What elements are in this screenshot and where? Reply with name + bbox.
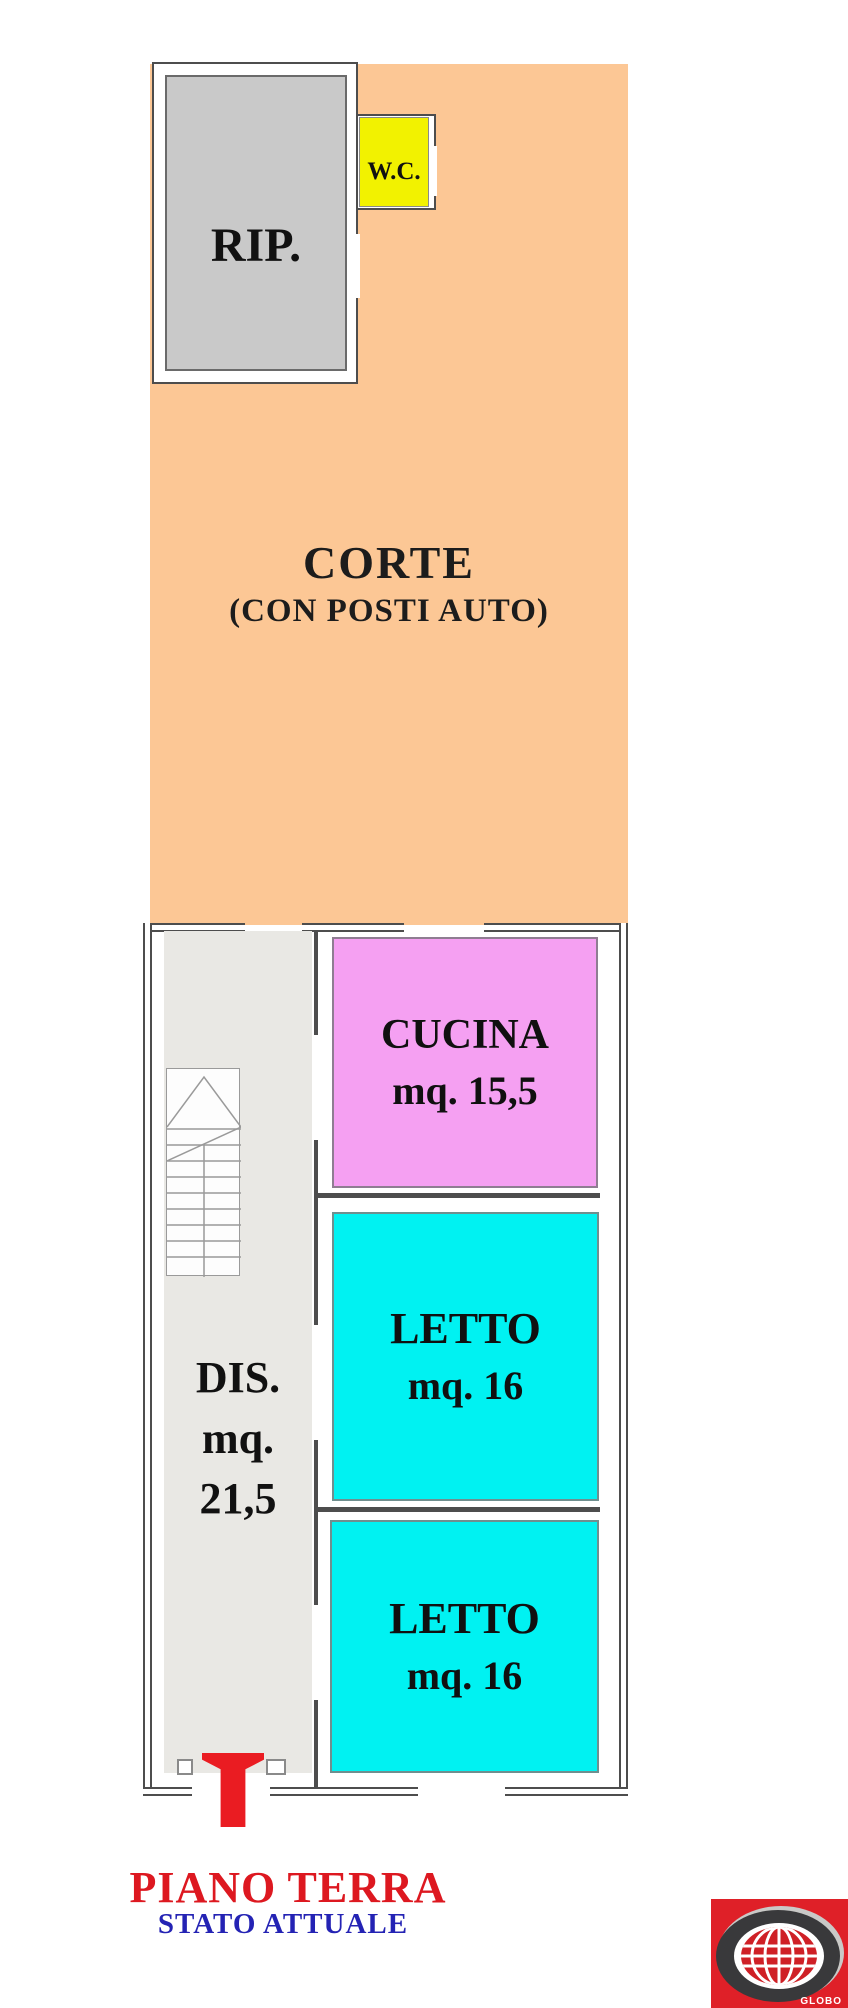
- globe-icon: GLOBO: [711, 1899, 848, 2008]
- floor-plan-canvas: CORTE (CON POSTI AUTO) RIP. W.C. DIS. mq…: [0, 0, 848, 2008]
- logo-text: GLOBO: [800, 1996, 842, 2007]
- bottom-wall-segment-2: [270, 1787, 418, 1796]
- plan-title: PIANO TERRA: [88, 1862, 488, 1913]
- dis-area-unit: mq.: [158, 1409, 318, 1470]
- entrance-jamb-left: [177, 1759, 193, 1775]
- wc-door-opening: [429, 146, 437, 196]
- staircase-drawing: [167, 1069, 241, 1277]
- rip-door-opening: [352, 234, 360, 298]
- letto2-label: LETTO: [389, 1595, 540, 1643]
- dis-label: DIS. mq. 21,5: [158, 1348, 318, 1530]
- partition-wall-segment-1: [314, 931, 318, 1035]
- dis-room-name: DIS.: [158, 1348, 318, 1409]
- letto1-label: LETTO: [390, 1305, 541, 1353]
- left-outer-wall: [143, 923, 152, 1795]
- letto2-area: mq. 16: [407, 1654, 523, 1698]
- corte-subtitle: (CON POSTI AUTO): [150, 595, 628, 628]
- cucina-label: CUCINA: [381, 1012, 549, 1058]
- wall-under-cucina: [318, 1193, 600, 1198]
- bottom-wall-segment-3: [505, 1787, 628, 1796]
- top-wall-segment-3: [484, 923, 628, 932]
- entrance-jamb-right: [266, 1759, 286, 1775]
- letto1-room: LETTO mq. 16: [332, 1212, 599, 1501]
- wc-label: W.C.: [359, 158, 429, 186]
- bottom-wall-segment-1: [143, 1787, 192, 1796]
- staircase: [166, 1068, 240, 1276]
- corte-label: CORTE (CON POSTI AUTO): [150, 540, 628, 628]
- corte-title: CORTE: [150, 540, 628, 586]
- cucina-area: mq. 15,5: [392, 1069, 538, 1113]
- dis-area-value: 21,5: [158, 1469, 318, 1530]
- entrance-marker: [202, 1753, 264, 1827]
- rip-label: RIP.: [165, 218, 347, 273]
- wall-between-bedrooms: [318, 1507, 600, 1512]
- right-outer-wall: [619, 923, 628, 1795]
- partition-wall-segment-2: [314, 1140, 318, 1325]
- partition-wall-segment-4: [314, 1700, 318, 1787]
- plan-subtitle: STATO ATTUALE: [88, 1908, 478, 1941]
- cucina-room: CUCINA mq. 15,5: [332, 937, 598, 1188]
- agency-logo: GLOBO: [711, 1899, 848, 2008]
- letto1-area: mq. 16: [408, 1364, 524, 1408]
- letto2-room: LETTO mq. 16: [330, 1520, 599, 1773]
